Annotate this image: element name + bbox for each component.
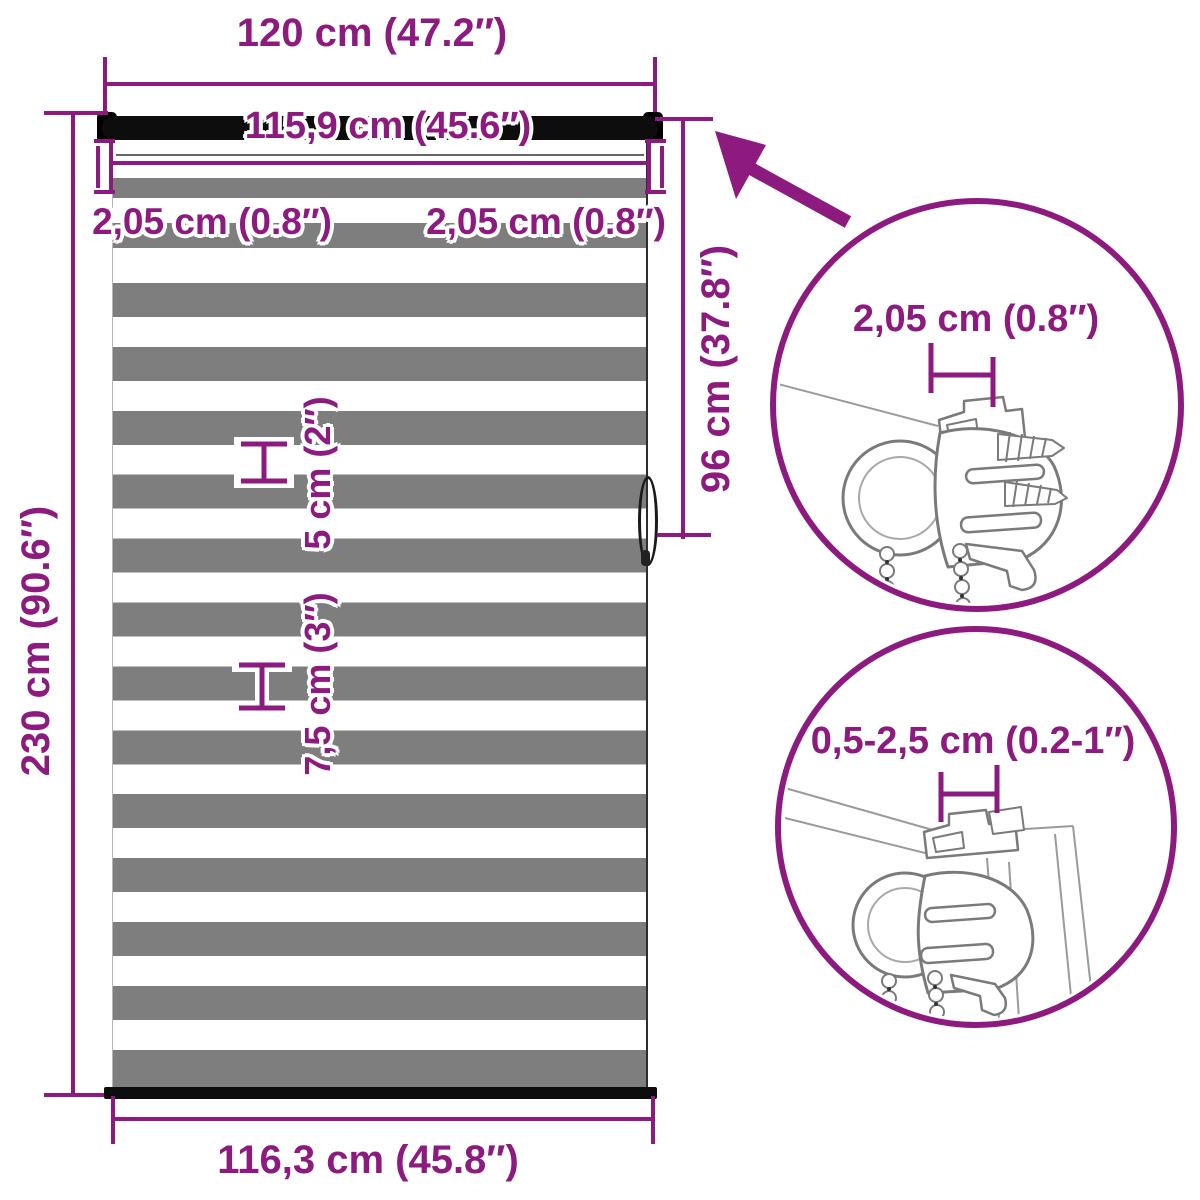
white-stripe-label: 5 cm (2″) bbox=[297, 388, 339, 558]
fabric-stripe bbox=[112, 178, 648, 198]
roller-width-label: 115,9 cm (45.6″) bbox=[148, 104, 628, 148]
bracket-width-label-right: 2,05 cm (0.8″) bbox=[366, 200, 726, 244]
fabric-width-tick-inner-left bbox=[109, 142, 113, 192]
top-width-label: 120 cm (47.2″) bbox=[132, 10, 612, 56]
fabric-edge-left bbox=[112, 140, 113, 1087]
fabric-stripe bbox=[112, 1050, 648, 1087]
bracket-tick-cap-left-top bbox=[94, 139, 115, 143]
drop-height-dim-line bbox=[71, 113, 75, 1097]
drop-height-tick-bottom bbox=[44, 1093, 108, 1097]
bottom-bar bbox=[104, 1087, 657, 1099]
bracket-tick-cap-right-top bbox=[645, 139, 666, 143]
drop-height-tick-top bbox=[44, 111, 108, 115]
zebra-blind-dimension-diagram: { "diagram": { "unit_labels": { "top_wid… bbox=[0, 0, 1200, 1200]
bracket-tick-outer-left bbox=[96, 146, 100, 188]
top-width-dim-tick-left bbox=[103, 57, 107, 112]
bottom-width-dim-line bbox=[113, 1117, 653, 1121]
fabric-stripe-pattern bbox=[112, 283, 648, 1050]
mount-bracket-sketch-bottom bbox=[775, 626, 1177, 1028]
blind-fabric bbox=[112, 140, 648, 1087]
detail-top-bracket-label: 2,05 cm (0.8″) bbox=[826, 298, 1126, 341]
pull-cord-knob bbox=[641, 550, 650, 566]
fabric-edge-right bbox=[646, 140, 648, 1087]
top-width-dim-line bbox=[105, 82, 655, 86]
bracket-tick-outer-right bbox=[660, 146, 664, 188]
bottom-width-tick-left bbox=[111, 1096, 115, 1144]
fabric-width-dim-line bbox=[111, 161, 649, 165]
fabric-hem-line bbox=[116, 154, 644, 156]
fabric-width-tick-inner-right bbox=[647, 142, 651, 192]
top-width-dim-tick-right bbox=[653, 57, 657, 112]
bottom-width-label: 116,3 cm (45.8″) bbox=[128, 1137, 608, 1183]
bracket-tick-cap-left-bottom bbox=[94, 190, 115, 194]
mount-bracket-sketch-top bbox=[770, 198, 1184, 612]
white-stripe-marker bbox=[230, 432, 300, 492]
partial-height-dim-line bbox=[681, 119, 685, 539]
gray-stripe-marker bbox=[228, 652, 298, 722]
bottom-width-tick-right bbox=[651, 1096, 655, 1144]
drop-height-label: 230 cm (90.6″) bbox=[13, 461, 59, 821]
bracket-width-label-left: 2,05 cm (0.8″) bbox=[32, 200, 392, 244]
partial-height-label: 96 cm (37.8″) bbox=[693, 199, 739, 539]
bracket-tick-cap-right-bottom bbox=[645, 190, 666, 194]
gray-stripe-label: 7,5 cm (3″) bbox=[297, 579, 339, 789]
detail-mount-depth-label: 0,5-2,5 cm (0.2-1″) bbox=[773, 720, 1173, 763]
